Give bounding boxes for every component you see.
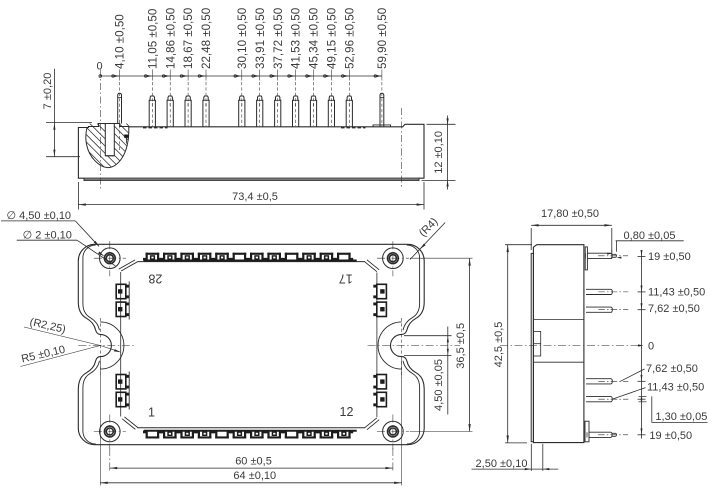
svg-text:42,5 ±0,5: 42,5 ±0,5 [493,322,505,368]
svg-text:41,53 ±0,50: 41,53 ±0,50 [290,8,303,69]
svg-text:17,80 ±0,50: 17,80 ±0,50 [541,208,599,220]
svg-text:59,90 ±0,50: 59,90 ±0,50 [376,8,389,69]
svg-text:37,72 ±0,50: 37,72 ±0,50 [272,8,285,69]
svg-text:11,43 ±0,50: 11,43 ±0,50 [647,381,704,393]
svg-text:14,86 ±0,50: 14,86 ±0,50 [164,8,177,69]
svg-text:60 ±0,5: 60 ±0,5 [235,455,272,467]
svg-text:∅ 4,50 ±0,10: ∅ 4,50 ±0,10 [7,210,72,222]
svg-text:11,43 ±0,50: 11,43 ±0,50 [648,287,705,299]
svg-text:19 ±0,50: 19 ±0,50 [649,430,692,442]
svg-text:30,10 ±0,50: 30,10 ±0,50 [236,8,249,69]
svg-text:45,34 ±0,50: 45,34 ±0,50 [308,8,321,69]
svg-text:33,91 ±0,50: 33,91 ±0,50 [254,8,267,69]
svg-text:19 ±0,50: 19 ±0,50 [648,251,691,263]
svg-text:22,48 ±0,50: 22,48 ±0,50 [200,8,213,69]
svg-text:36,5 ±0,5: 36,5 ±0,5 [455,323,467,369]
svg-text:∅ 2 ±0,10: ∅ 2 ±0,10 [23,229,72,241]
svg-text:1,30 ±0,05: 1,30 ±0,05 [655,411,707,423]
svg-text:7,62 ±0,50: 7,62 ±0,50 [648,303,700,315]
svg-text:0,80 ±0,05: 0,80 ±0,05 [624,230,676,242]
svg-text:7 ±0,20: 7 ±0,20 [42,73,54,110]
svg-text:64 ±0,10: 64 ±0,10 [233,470,276,482]
svg-text:4,50 ±0,05: 4,50 ±0,05 [433,359,445,411]
svg-text:18,67 ±0,50: 18,67 ±0,50 [182,8,195,69]
svg-text:4,10 ±0,50: 4,10 ±0,50 [114,14,127,69]
svg-text:17: 17 [339,272,353,286]
svg-text:0: 0 [648,341,654,353]
svg-text:49,15 ±0,50: 49,15 ±0,50 [326,8,339,69]
svg-text:7,62 ±0,50: 7,62 ±0,50 [646,363,698,375]
svg-text:1: 1 [148,406,155,420]
svg-text:11,05 ±0,50: 11,05 ±0,50 [146,9,159,69]
svg-text:0: 0 [97,60,103,72]
svg-text:12: 12 [340,405,354,419]
svg-text:52,96 ±0,50: 52,96 ±0,50 [343,8,356,69]
svg-text:2,50 ±0,10: 2,50 ±0,10 [476,458,528,470]
svg-text:73,4 ±0,5: 73,4 ±0,5 [232,191,278,203]
svg-text:28: 28 [148,272,162,286]
svg-text:12 ±0,10: 12 ±0,10 [433,131,445,174]
